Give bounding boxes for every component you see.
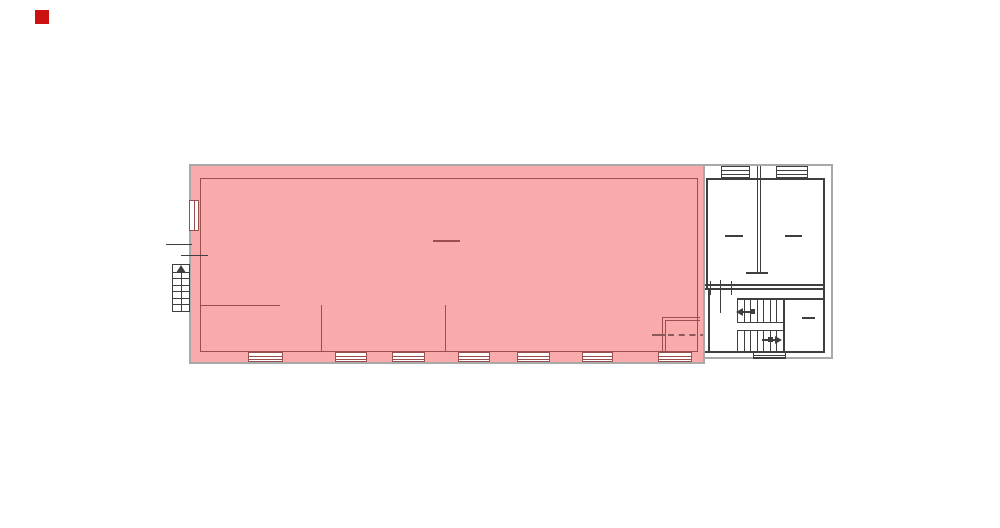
bottom-window: [392, 352, 425, 362]
stair-down-arrowhead-icon: [775, 336, 782, 344]
window-pane-line: [722, 170, 749, 171]
window-pane-line: [518, 359, 549, 360]
stair-tread-line: [757, 331, 758, 351]
window-pane-line: [393, 356, 424, 357]
window-pane-line: [336, 356, 366, 357]
window-pane-line: [459, 356, 489, 357]
stair-up-arrow-origin-dot: [750, 309, 755, 314]
window-pane-line: [659, 359, 691, 360]
hall-inner-wall-outline: [200, 178, 698, 352]
ladder-up-arrow-icon: [176, 265, 186, 273]
stair-tread-line: [776, 299, 777, 323]
stair-tread-line: [783, 299, 784, 323]
stair-tread-line: [770, 299, 771, 323]
stair-tread-line: [763, 299, 764, 323]
door-jamb-tick-left: [710, 281, 711, 295]
window-pane-line: [249, 356, 282, 357]
exterior-tick-line-2: [181, 255, 208, 256]
top-window: [721, 166, 750, 178]
small-room-wall-top-outer: [662, 317, 700, 318]
room-divider-wall-right-line: [760, 166, 761, 273]
wing-right-inner-wall: [823, 178, 825, 352]
window-pane-line: [393, 359, 424, 360]
rooms-bottom-wall-outer: [705, 284, 825, 286]
window-pane-line: [777, 174, 807, 175]
ladder-center-line: [181, 271, 182, 311]
window-pane-line: [777, 170, 807, 171]
entry-steps-window: [753, 352, 786, 359]
room-divider-wall-left-line: [757, 166, 758, 273]
stair-tread-line: [744, 331, 745, 351]
room-b-center-mark: [785, 235, 802, 237]
entry-step-line: [754, 357, 785, 358]
room-a-center-mark: [725, 235, 743, 237]
stair-tread-line: [783, 331, 784, 351]
entry-step-line: [754, 355, 785, 356]
hall-center-mark: [433, 240, 460, 242]
wing-top-inner-wall: [706, 178, 825, 180]
window-pane-line: [249, 359, 282, 360]
window-pane-line: [659, 356, 691, 357]
stairwell-left-wall: [708, 288, 710, 352]
exterior-tick-line-1: [166, 244, 192, 245]
small-room-reference-line: [652, 334, 666, 336]
stair-tread-line: [737, 331, 738, 351]
floor-plan-canvas: [0, 0, 1000, 528]
top-window: [776, 166, 808, 178]
bottom-window: [248, 352, 283, 362]
left-wall-window: [189, 200, 199, 231]
window-pane-line: [583, 356, 612, 357]
window-pane-line: [336, 359, 366, 360]
stair-room-center-mark: [802, 317, 815, 319]
bottom-window: [517, 352, 550, 362]
hall-partition-vertical-2: [445, 305, 446, 352]
stair-tread-line: [750, 331, 751, 351]
door-jamb-tick-right: [731, 281, 732, 295]
bottom-window: [658, 352, 692, 362]
window-mullion: [194, 201, 195, 230]
small-room-wall-left-inner: [665, 320, 666, 352]
selection-color-marker: [35, 10, 49, 24]
window-pane-line: [518, 356, 549, 357]
stair-tread-line: [763, 331, 764, 351]
window-pane-line: [722, 174, 749, 175]
exterior-stair-ladder: [172, 264, 190, 312]
bottom-window: [335, 352, 367, 362]
rooms-left-wall: [706, 178, 708, 288]
stair-tread-line: [757, 299, 758, 323]
door-leaf-line: [720, 280, 721, 313]
hall-partition-vertical-1: [321, 305, 322, 352]
rooms-bottom-wall-inner: [705, 288, 825, 290]
hall-partition-horizontal: [200, 305, 280, 306]
room-divider-end-tick: [746, 272, 768, 274]
window-pane-line: [459, 359, 489, 360]
bottom-window: [582, 352, 613, 362]
small-room-wall-top-inner: [665, 320, 700, 321]
bottom-window: [458, 352, 490, 362]
stair-up-arrowhead-icon: [736, 308, 743, 316]
stair-down-arrow-origin-dot: [768, 337, 773, 342]
window-pane-line: [583, 359, 612, 360]
